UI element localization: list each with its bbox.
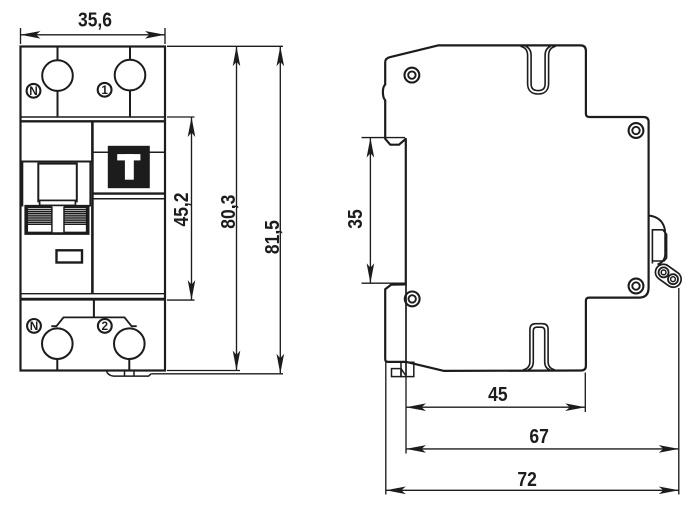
svg-text:72: 72: [517, 468, 537, 491]
svg-text:N: N: [29, 84, 38, 98]
svg-text:2: 2: [102, 319, 109, 333]
svg-text:67: 67: [529, 425, 549, 448]
svg-text:35,6: 35,6: [78, 9, 112, 32]
svg-text:81,5: 81,5: [261, 220, 284, 254]
svg-text:1: 1: [101, 83, 108, 97]
svg-text:45,2: 45,2: [170, 193, 193, 227]
svg-text:80,3: 80,3: [217, 195, 240, 229]
svg-text:35: 35: [344, 209, 367, 229]
svg-text:45: 45: [488, 383, 508, 406]
svg-text:N: N: [30, 319, 39, 333]
